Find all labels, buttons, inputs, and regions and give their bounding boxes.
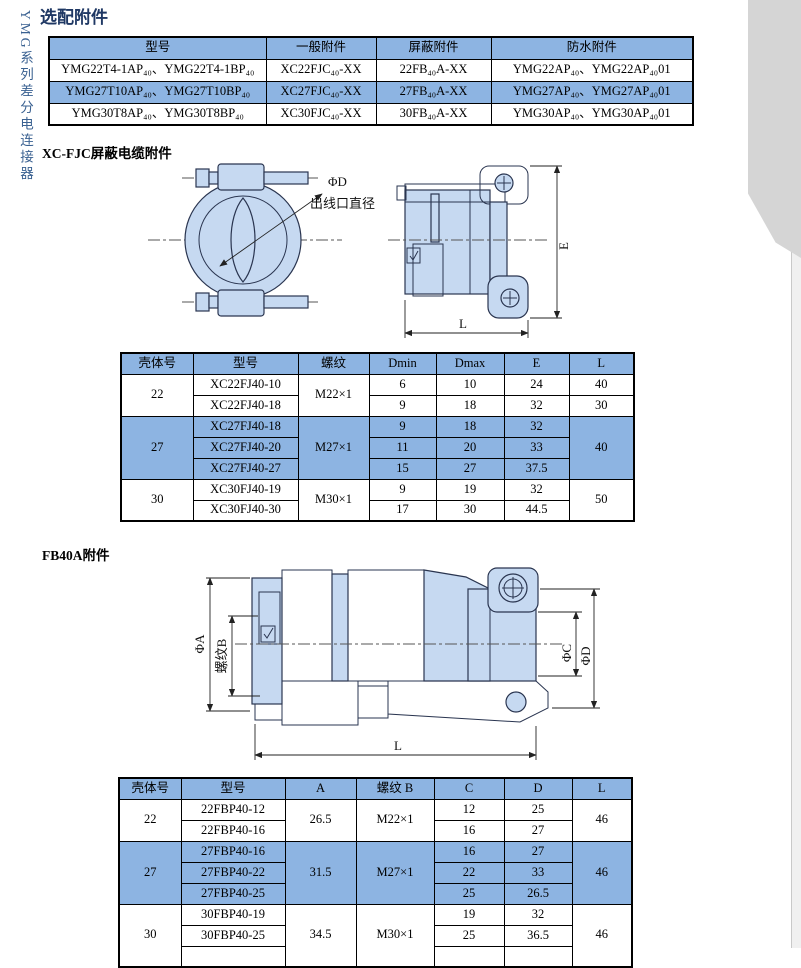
cell: 27FB₄₀A-XX [376,81,491,103]
header-cell: 型号 [193,353,298,374]
dim-l-label: L [459,316,467,331]
cell: 32 [504,416,569,437]
cell: 6 [369,374,436,395]
cell: 27FBP40-16 [181,841,285,862]
cell: M27×1 [298,416,369,479]
dim-e-label: E [556,242,571,250]
connector-side-view: E L [388,166,571,338]
cell [434,946,504,967]
cell: 27 [504,841,572,862]
cell: 32 [504,395,569,416]
top-clamp-screw [196,164,308,190]
cell: 32 [504,479,569,500]
cell: 20 [436,437,504,458]
cell: 22FBP40-12 [181,799,285,820]
cell: 30 [121,479,193,521]
dim-thread-b-label: 螺纹B [214,638,229,673]
cell: YMG22AP₄₀、YMG22AP₄₀01 [491,59,693,81]
cell: 26.5 [504,883,572,904]
cell: XC30FJ40-30 [193,500,298,521]
cell: 27FBP40-22 [181,862,285,883]
xcfjc-dimension-table: 壳体号 型号 螺纹 Dmin Dmax E L 22 XC22FJ40-10 M… [120,352,635,522]
fb40a-dimension-table: 壳体号 型号 A 螺纹 B C D L 22 22FBP40-12 26.5 M… [118,777,633,968]
table-row: YMG30T8AP₄₀、YMG30T8BP₄₀ XC30FJC₄₀-XX 30F… [49,103,693,125]
cell: 22 [119,799,181,841]
table-row: 30 30FBP40-19 34.5 M30×1 19 32 46 [119,904,632,925]
header-cell: 型号 [181,778,285,799]
table-row: YMG27T10AP₄₀、YMG27T10BP₄₀ XC27FJC₄₀-XX 2… [49,81,693,103]
cell: 22 [121,374,193,416]
fb40a-technical-drawing: ΦA 螺纹B ΦC ΦD L [180,556,620,770]
cell: 30FBP40-19 [181,904,285,925]
table-header-row: 型号 一般附件 屏蔽附件 防水附件 [49,37,693,59]
cell: M22×1 [298,374,369,416]
table-row: 27 XC27FJ40-18 M27×1 9 18 32 40 [121,416,634,437]
table-row: XC27FJ40-27 15 27 37.5 [121,458,634,479]
cell: 18 [436,416,504,437]
cell: 40 [569,374,634,395]
cell: 26.5 [285,799,356,841]
header-cell: 螺纹 B [356,778,434,799]
header-cell: 防水附件 [491,37,693,59]
cell: 50 [569,479,634,521]
table-row: XC30FJ40-30 17 30 44.5 [121,500,634,521]
header-cell: E [504,353,569,374]
cell: 32 [504,904,572,925]
cell: XC30FJC₄₀-XX [266,103,376,125]
table-header-row: 壳体号 型号 A 螺纹 B C D L [119,778,632,799]
cell [181,946,285,967]
header-cell: 屏蔽附件 [376,37,491,59]
header-cell: D [504,778,572,799]
header-cell: L [572,778,632,799]
cell: 30 [569,395,634,416]
cell: 25 [434,925,504,946]
cell: YMG27T10AP₄₀、YMG27T10BP₄₀ [49,81,266,103]
header-cell: Dmin [369,353,436,374]
cell: 22 [434,862,504,883]
cell: 19 [436,479,504,500]
cell: 9 [369,395,436,416]
cell: 46 [572,799,632,841]
cell: 27 [436,458,504,479]
dim-l-label: L [394,738,402,753]
header-cell: 一般附件 [266,37,376,59]
cell: 25 [434,883,504,904]
cell: 46 [572,841,632,904]
cell: 30 [119,904,181,967]
cell: 25 [504,799,572,820]
cell: 46 [572,904,632,967]
header-cell: 壳体号 [119,778,181,799]
cell: M22×1 [356,799,434,841]
table-row: 22 22FBP40-12 26.5 M22×1 12 25 46 [119,799,632,820]
cell: 9 [369,479,436,500]
cell: M30×1 [298,479,369,521]
cell: 27FBP40-25 [181,883,285,904]
cell: 44.5 [504,500,569,521]
cell [504,946,572,967]
table-header-row: 壳体号 型号 螺纹 Dmin Dmax E L [121,353,634,374]
cell: XC22FJ40-18 [193,395,298,416]
xcfjc-technical-drawing: ΦD 出线口直径 E [130,160,600,348]
cell: 16 [434,820,504,841]
table-row: 27 27FBP40-16 31.5 M27×1 16 27 46 [119,841,632,862]
header-cell: L [569,353,634,374]
cell: 22FB₄₀A-XX [376,59,491,81]
cell: 27 [119,841,181,904]
section-heading-fb40a: FB40A附件 [42,544,110,564]
cable-clamp-front-view: ΦD 出线口直径 [148,164,375,316]
table-row: 22 XC22FJ40-10 M22×1 6 10 24 40 [121,374,634,395]
cell: XC22FJC₄₀-XX [266,59,376,81]
cell: M27×1 [356,841,434,904]
cell: XC30FJ40-19 [193,479,298,500]
phillips-screw-icon [499,574,527,602]
cell: 17 [369,500,436,521]
header-cell: Dmax [436,353,504,374]
dimension-e: E [530,166,571,318]
cell: XC27FJ40-20 [193,437,298,458]
header-cell: 壳体号 [121,353,193,374]
cell: 31.5 [285,841,356,904]
cell: 27 [121,416,193,479]
cell: 18 [436,395,504,416]
section-heading-xcfjc: XC-FJC屏蔽电缆附件 [42,142,172,162]
cell: 12 [434,799,504,820]
cell: YMG27AP₄₀、YMG27AP₄₀01 [491,81,693,103]
table-row: XC27FJ40-20 11 20 33 [121,437,634,458]
cell: 33 [504,862,572,883]
cell: 22FBP40-16 [181,820,285,841]
cell: XC27FJ40-18 [193,416,298,437]
cell: YMG30T8AP₄₀、YMG30T8BP₄₀ [49,103,266,125]
side-tab-label: YMG系列差分电连接器 [15,10,35,183]
outlet-diameter-label: 出线口直径 [310,196,375,211]
cell: 16 [434,841,504,862]
cell: 34.5 [285,904,356,967]
cell: 15 [369,458,436,479]
dim-phi-d-label: ΦD [578,647,593,666]
cell: XC22FJ40-10 [193,374,298,395]
cell: 10 [436,374,504,395]
cell: 30 [436,500,504,521]
backshell-side-view: ΦA 螺纹B ΦC ΦD L [192,568,600,760]
cell: 36.5 [504,925,572,946]
cell: 11 [369,437,436,458]
header-cell: 螺纹 [298,353,369,374]
cell: 19 [434,904,504,925]
cell: M30×1 [356,904,434,967]
bottom-clamp-screw [196,290,308,316]
page-title: 选配附件 [40,3,108,28]
cell: 9 [369,416,436,437]
dimension-l: L [255,724,536,760]
cell: XC27FJC₄₀-XX [266,81,376,103]
phillips-screw-icon [501,289,519,307]
header-cell: A [285,778,356,799]
table-row: XC22FJ40-18 9 18 32 30 [121,395,634,416]
cell: 37.5 [504,458,569,479]
cell: XC27FJ40-27 [193,458,298,479]
cell: 33 [504,437,569,458]
dim-phi-a-label: ΦA [192,634,207,654]
table-row: YMG22T4-1AP₄₀、YMG22T4-1BP₄₀ XC22FJC₄₀-XX… [49,59,693,81]
dim-phi-c-label: ΦC [559,644,574,662]
phillips-screw-icon [495,174,513,192]
accessory-table: 型号 一般附件 屏蔽附件 防水附件 YMG22T4-1AP₄₀、YMG22T4-… [48,36,694,126]
table-row: 30 XC30FJ40-19 M30×1 9 19 32 50 [121,479,634,500]
cell: 30FB₄₀A-XX [376,103,491,125]
cell: YMG22T4-1AP₄₀、YMG22T4-1BP₄₀ [49,59,266,81]
side-tab [748,0,801,258]
cell: 40 [569,416,634,479]
phi-d-label: ΦD [328,174,347,189]
cell: YMG30AP₄₀、YMG30AP₄₀01 [491,103,693,125]
header-cell: 型号 [49,37,266,59]
cell: 27 [504,820,572,841]
header-cell: C [434,778,504,799]
cell: 24 [504,374,569,395]
cell: 30FBP40-25 [181,925,285,946]
